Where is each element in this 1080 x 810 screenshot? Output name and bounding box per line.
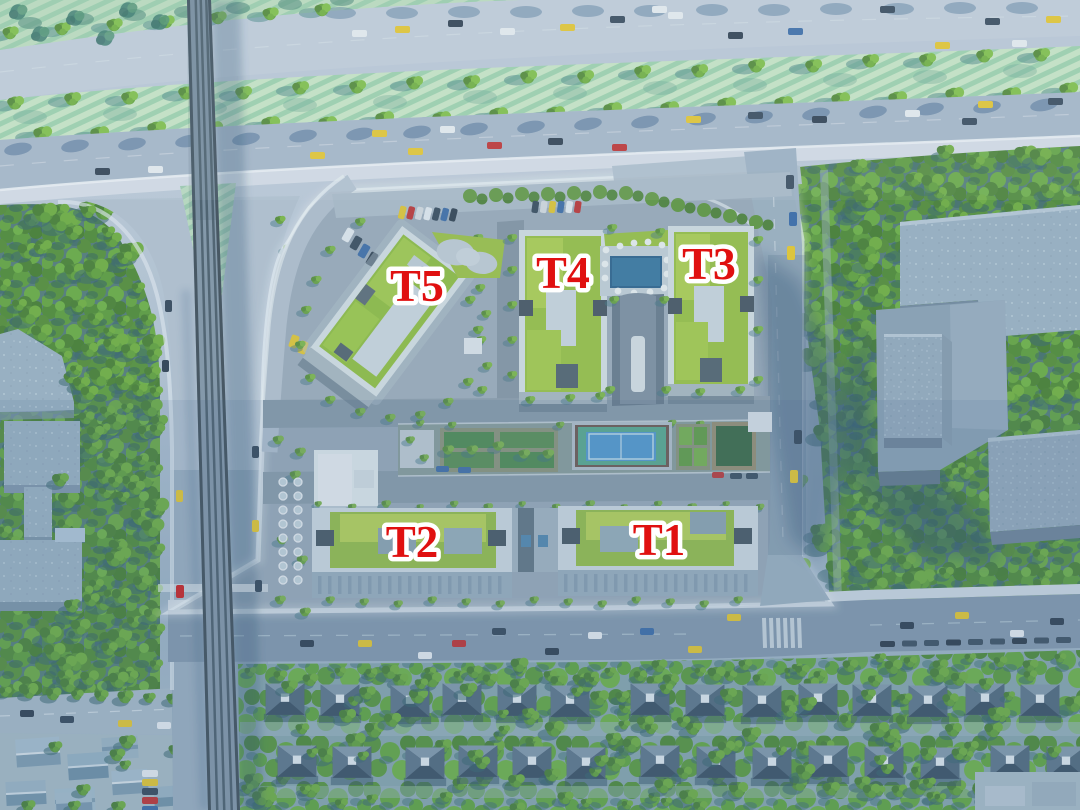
svg-text:T3: T3 [682,238,736,289]
svg-text:T1: T1 [633,515,686,565]
svg-text:T4: T4 [536,247,590,298]
svg-text:T2: T2 [386,517,439,567]
svg-text:T5: T5 [390,260,444,311]
